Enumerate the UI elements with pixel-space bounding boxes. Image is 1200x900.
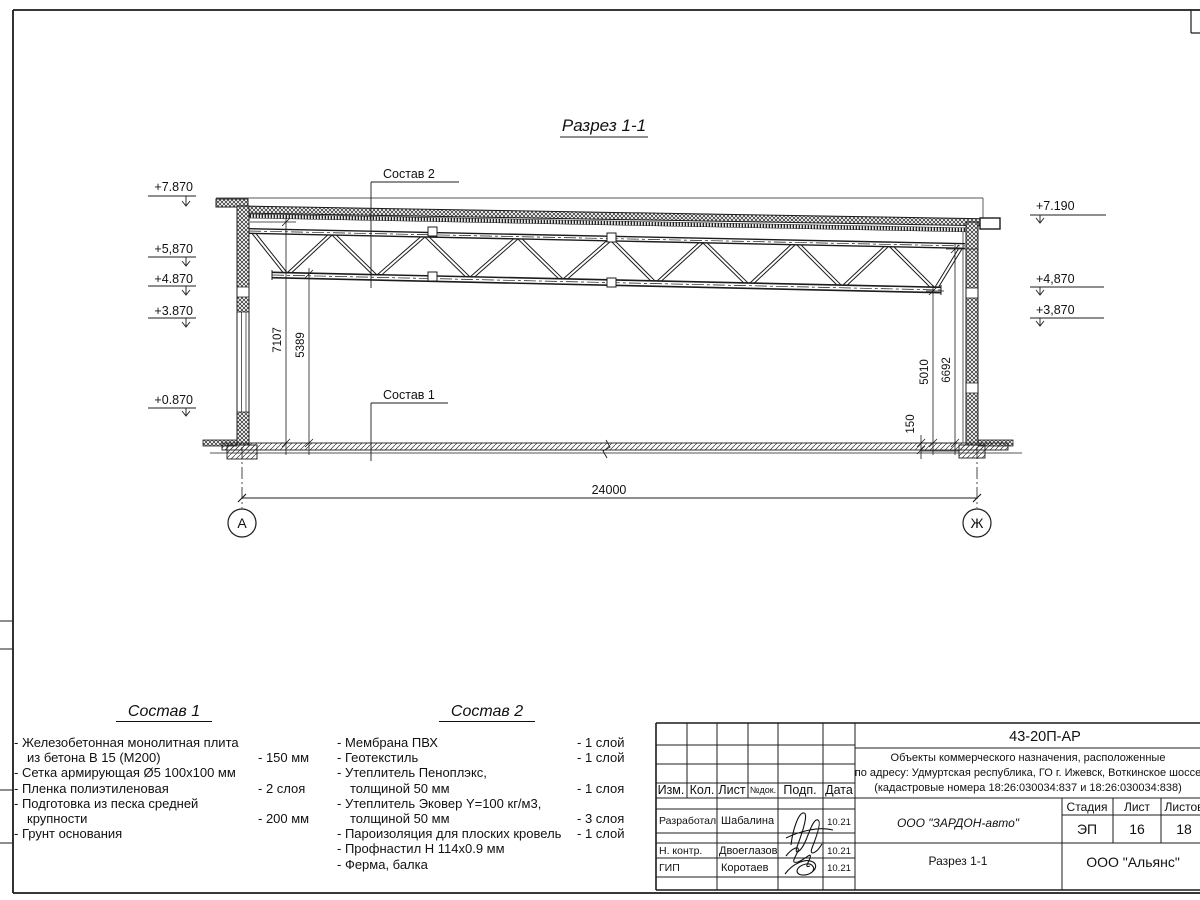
section-view <box>203 198 1022 459</box>
elev-l4: +3.870 <box>154 304 193 318</box>
spec2-row: толщиной 50 мм- 1 слоя <box>337 781 637 796</box>
axis-bubble-right: Ж <box>963 509 991 537</box>
material-spec-1: Состав 1 - Железобетонная монолитная пли… <box>14 704 314 841</box>
spec2-row: толщиной 50 мм- 3 слоя <box>337 811 637 826</box>
foundation-right <box>959 445 985 458</box>
stage-value: ЭП <box>1077 821 1097 837</box>
dim-7107: 7107 <box>272 327 284 353</box>
wall-right <box>963 222 978 445</box>
list-label: Лист <box>1124 800 1151 814</box>
spec2-row: - Профнастил Н 114х0.9 мм <box>337 841 637 856</box>
axis-bubble-left: А <box>228 509 256 537</box>
contractor-org: ООО "Альянс" <box>1086 854 1180 870</box>
elev-l1: +7.870 <box>154 180 193 194</box>
project-line1: Объекты коммерческого назначения, распол… <box>891 752 1166 764</box>
row1-role: Разработал <box>659 815 716 827</box>
row3-date: 10.21 <box>827 863 851 874</box>
row2-name: Двоеглазов <box>719 845 778 857</box>
spec1-row: - Железобетонная монолитная плита <box>14 735 314 750</box>
col-izm: Изм. <box>658 783 685 797</box>
dim-5389: 5389 <box>295 332 307 358</box>
title-block-text: Изм. Кол. Лист №док. Подп. Дата Разработ… <box>658 729 1200 874</box>
wall-left <box>237 206 249 445</box>
col-podp: Подп. <box>783 783 816 797</box>
stage-label: Стадия <box>1067 800 1108 814</box>
dim-5010: 5010 <box>919 359 931 385</box>
spec1-row: - Грунт основания <box>14 826 314 841</box>
elev-r2: +4,870 <box>1036 272 1075 286</box>
elev-l3: +4.870 <box>154 272 193 286</box>
width-dimension <box>238 447 981 508</box>
axis-right-label: Ж <box>971 515 984 531</box>
axis-left-label: А <box>237 515 247 531</box>
material-spec-2: Состав 2 - Мембрана ПВХ- 1 слой - Геотек… <box>337 704 637 872</box>
spec1-row: - Подготовка из песка средней <box>14 796 314 811</box>
dim-6692: 6692 <box>941 357 953 383</box>
doc-number: 43-20П-АР <box>1009 729 1081 745</box>
dim-24000: 24000 <box>592 483 627 497</box>
spec2-row: - Геотекстиль- 1 слой <box>337 750 637 765</box>
leader-sostav2-label: Состав 2 <box>383 167 435 181</box>
leader-sostav1-label: Состав 1 <box>383 388 435 402</box>
row2-role: Н. контр. <box>659 845 702 857</box>
spec2-row: - Утеплитель Пеноплэкс, <box>337 765 637 780</box>
spec1-heading-text: Состав 1 <box>116 703 212 722</box>
roof-edge-cap-right <box>980 218 1000 229</box>
spec2-row: - Ферма, балка <box>337 857 637 872</box>
drawing-sheet: { "page": { "sheet_title": "Разрез 1-1" … <box>0 0 1200 900</box>
project-line3: (кадастровые номера 18:26:030034:837 и 1… <box>874 782 1182 794</box>
spec2-heading: Состав 2 <box>337 704 637 726</box>
spec1-row: крупности- 200 мм <box>14 811 314 826</box>
col-data: Дата <box>825 783 853 797</box>
roof-truss <box>249 227 965 295</box>
spec1-row: из бетона В 15 (М200)- 150 мм <box>14 750 314 765</box>
spec1-row: - Сетка армирующая Ø5 100х100 мм <box>14 765 314 780</box>
elev-l5: +0.870 <box>154 393 193 407</box>
elev-r3: +3,870 <box>1036 303 1075 317</box>
vertical-dimensions <box>250 216 978 459</box>
row1-name: Шабалина <box>721 815 775 827</box>
customer-org: ООО "ЗАРДОН-авто" <box>897 816 1020 830</box>
row1-date: 10.21 <box>827 817 851 828</box>
listov-value: 18 <box>1176 821 1192 837</box>
project-line2: по адресу: Удмуртская республика, ГО г. … <box>855 767 1200 779</box>
col-ndok: №док. <box>750 785 776 795</box>
spec2-row: - Утеплитель Эковер Y=100 кг/м3, <box>337 796 637 811</box>
signatures <box>785 813 833 875</box>
spec1-row: - Пленка полиэтиленовая- 2 слоя <box>14 781 314 796</box>
row3-name: Коротаев <box>721 862 769 874</box>
sheet-name: Разрез 1-1 <box>929 854 988 868</box>
spec2-row: - Мембрана ПВХ- 1 слой <box>337 735 637 750</box>
row2-date: 10.21 <box>827 846 851 857</box>
dim-150: 150 <box>905 414 917 433</box>
list-value: 16 <box>1129 821 1145 837</box>
elev-r1: +7.190 <box>1036 199 1075 213</box>
listov-label: Листов <box>1165 800 1200 814</box>
view-title: Разрез 1-1 <box>562 116 646 135</box>
spec1-heading: Состав 1 <box>14 704 314 726</box>
elev-l2: +5,870 <box>154 242 193 256</box>
col-list: Лист <box>718 783 745 797</box>
ground-strip-right <box>978 440 1013 446</box>
row3-role: ГИП <box>659 862 680 874</box>
roof-assembly <box>216 199 1000 232</box>
spec2-heading-text: Состав 2 <box>439 703 535 722</box>
spec2-row: - Пароизоляция для плоских кровель- 1 сл… <box>337 826 637 841</box>
ground-strip-left <box>203 440 237 446</box>
floor-slab <box>203 440 1022 459</box>
col-kol: Кол. <box>690 783 715 797</box>
